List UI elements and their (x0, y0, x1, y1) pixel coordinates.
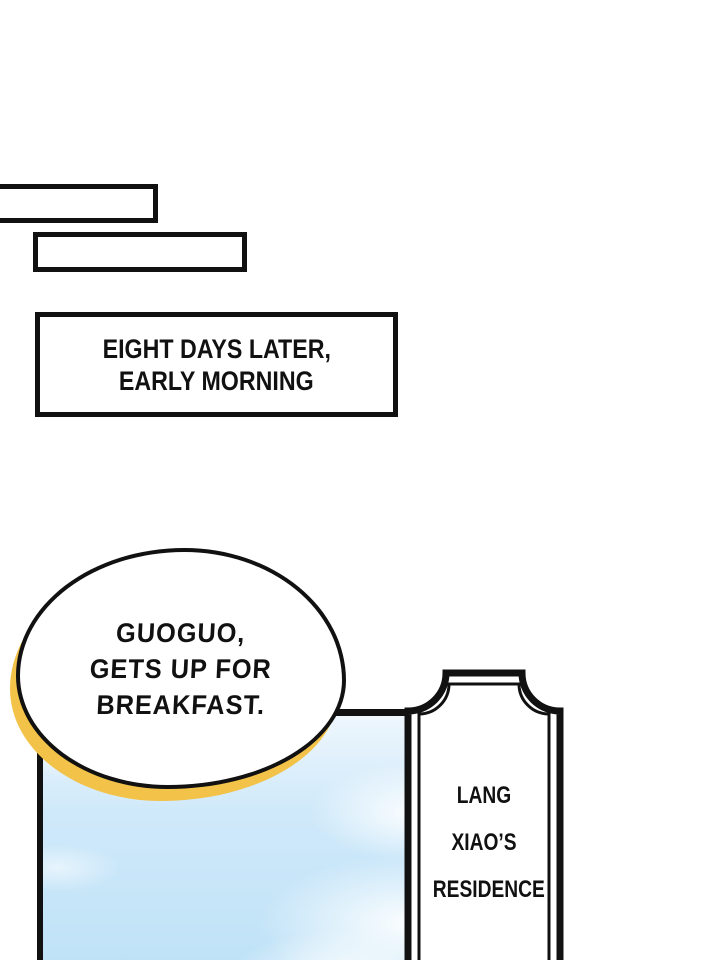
caption-line-1: EIGHT DAYS LATER, (102, 333, 330, 365)
narration-caption-box: EIGHT DAYS LATER, EARLY MORNING (35, 312, 398, 417)
sign-line-1: LANG (433, 772, 535, 819)
sign-line-3: RESIDENCE (433, 866, 535, 913)
speech-bubble: GUOGUO, GETS UP FOR BREAKFAST. (16, 548, 346, 789)
residence-sign-text: LANG XIAO’S RESIDENCE (420, 772, 548, 913)
sign-line-2: XIAO’S (433, 819, 535, 866)
decor-bar-bottom (33, 232, 247, 272)
bubble-line-3: BREAKFAST. (96, 687, 267, 723)
comic-page: EIGHT DAYS LATER, EARLY MORNING LANG XIA… (0, 0, 720, 960)
bubble-line-1: GUOGUO, (115, 615, 246, 651)
caption-line-2: EARLY MORNING (119, 365, 314, 397)
decor-bar-top (0, 184, 158, 223)
bubble-line-2: GETS UP FOR (89, 651, 273, 687)
